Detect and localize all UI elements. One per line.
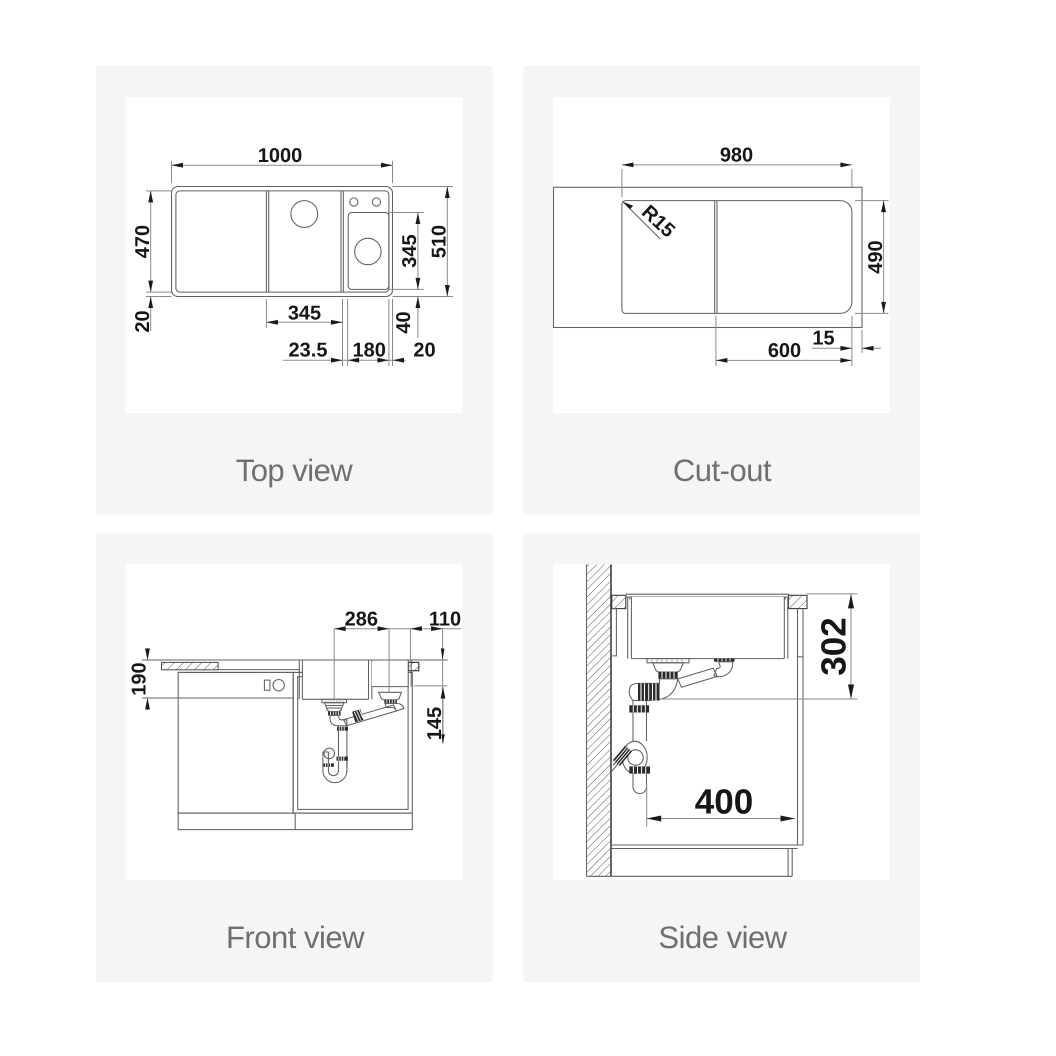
svg-text:400: 400	[695, 783, 753, 822]
svg-text:40: 40	[393, 311, 415, 333]
svg-text:302: 302	[815, 617, 854, 675]
svg-text:Front view: Front view	[226, 920, 365, 955]
svg-text:145: 145	[424, 707, 446, 740]
svg-text:286: 286	[345, 609, 378, 631]
svg-text:Top view: Top view	[236, 453, 354, 488]
svg-text:20: 20	[132, 310, 154, 332]
svg-text:1000: 1000	[258, 145, 303, 167]
svg-text:600: 600	[768, 340, 801, 362]
svg-text:110: 110	[429, 609, 461, 631]
svg-text:Side view: Side view	[658, 920, 787, 955]
svg-text:490: 490	[865, 240, 887, 273]
svg-text:Cut-out: Cut-out	[673, 453, 772, 488]
svg-text:190: 190	[129, 662, 151, 695]
svg-text:180: 180	[353, 340, 386, 362]
svg-text:510: 510	[429, 225, 451, 258]
svg-text:345: 345	[288, 302, 321, 324]
svg-text:20: 20	[413, 340, 435, 362]
svg-text:15: 15	[812, 327, 834, 349]
svg-text:980: 980	[720, 145, 753, 167]
svg-text:470: 470	[132, 225, 154, 258]
svg-text:23.5: 23.5	[289, 340, 328, 362]
svg-text:345: 345	[399, 234, 421, 267]
